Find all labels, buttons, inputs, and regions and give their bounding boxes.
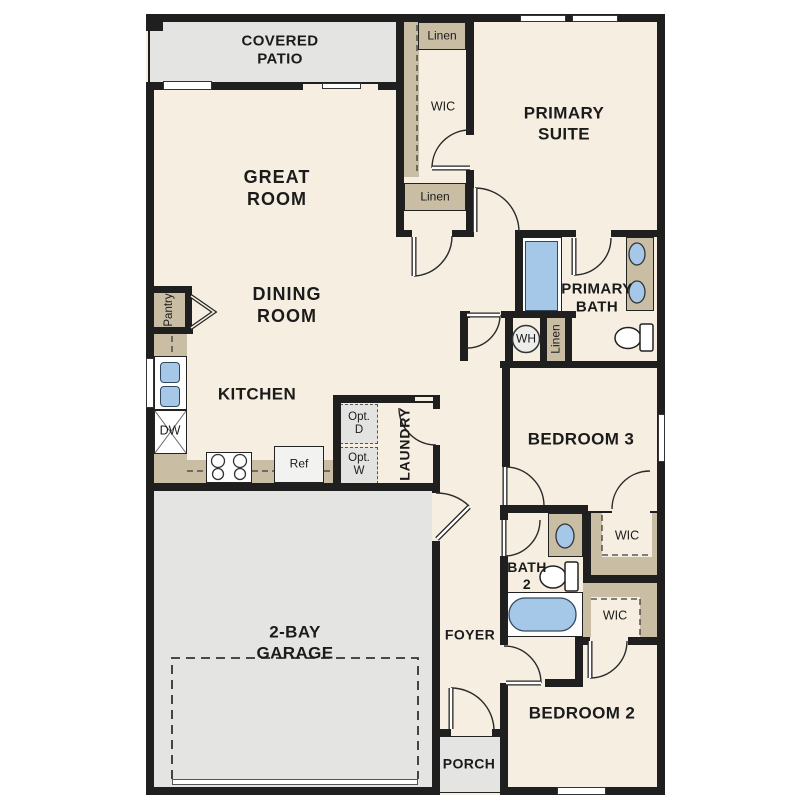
linen-hall-label: Linen — [420, 190, 449, 205]
opt-dryer-label: Opt. D — [348, 411, 370, 437]
pantry-label: Pantry — [162, 293, 176, 326]
wall — [565, 318, 572, 361]
wall — [650, 511, 658, 513]
wall — [433, 445, 440, 487]
covered-patio-label: COVERED PATIO — [242, 33, 319, 70]
wall — [466, 170, 474, 233]
opt-washer-label: Opt. W — [348, 452, 370, 478]
wall — [452, 230, 474, 237]
window — [572, 15, 618, 22]
bedroom2-label: BEDROOM 2 — [529, 704, 636, 725]
wall — [515, 230, 576, 237]
wall — [588, 511, 612, 513]
wall — [500, 683, 508, 793]
window — [658, 414, 665, 462]
wall — [583, 575, 665, 583]
wall — [500, 513, 508, 520]
wall — [396, 14, 404, 237]
refrigerator-label: Ref — [290, 457, 309, 472]
primary-bath-label: PRIMARY BATH — [561, 281, 632, 318]
primary-suite-label: PRIMARY SUITE — [524, 103, 605, 144]
wic-primary-label: WIC — [431, 99, 455, 114]
wall — [628, 637, 665, 645]
garage-label: 2-BAY GARAGE — [256, 622, 333, 663]
garage-door-threshold — [172, 779, 418, 785]
wall — [502, 368, 510, 467]
tub-surround — [503, 592, 583, 637]
wall — [540, 318, 547, 361]
dishwasher-label: DW — [160, 423, 181, 438]
sliding-door-panel — [322, 83, 361, 89]
kitchen-sink-basin-2 — [160, 386, 180, 407]
wall — [146, 483, 440, 491]
wall — [575, 637, 583, 687]
dining-room-label: DINING ROOM — [253, 284, 322, 328]
water-heater-label: WH — [516, 332, 536, 347]
stove-box — [206, 452, 252, 483]
window — [520, 15, 566, 22]
wall — [146, 14, 163, 31]
porch-label: PORCH — [443, 755, 496, 772]
wall — [333, 403, 341, 487]
wall — [492, 729, 504, 736]
bath2-label: BATH 2 — [507, 559, 546, 593]
wall — [152, 327, 193, 334]
kitchen-sink-basin-1 — [160, 362, 180, 383]
wall — [515, 237, 523, 313]
wall — [432, 729, 440, 793]
wall — [146, 82, 154, 795]
wic-bedroom2-label: WIC — [603, 608, 627, 623]
laundry-door-notch — [415, 397, 433, 401]
floor-plan: COVERED PATIO GREAT ROOM DINING ROOM KIT… — [0, 0, 810, 810]
shower-pan — [525, 241, 558, 311]
wall — [432, 541, 440, 729]
wall — [545, 679, 575, 687]
wall — [460, 318, 468, 361]
window — [557, 787, 606, 795]
wall — [466, 14, 474, 135]
wall — [505, 313, 513, 361]
great-room-label: GREAT ROOM — [244, 167, 311, 211]
window — [146, 358, 154, 408]
bedroom3-label: BEDROOM 3 — [528, 430, 635, 451]
linen-bath-label: Linen — [549, 324, 564, 353]
wall — [396, 230, 412, 237]
primary-wic-shelf-strip — [404, 22, 419, 177]
wall — [611, 230, 665, 237]
wall — [146, 787, 440, 795]
window — [163, 81, 212, 90]
bath2-vanity — [548, 513, 583, 557]
wall — [460, 311, 470, 318]
wic-bedroom3-label: WIC — [615, 528, 639, 543]
wall — [657, 14, 665, 795]
kitchen-label: KITCHEN — [218, 385, 296, 406]
wall — [583, 637, 590, 645]
linen-top-label: Linen — [427, 29, 456, 44]
wall — [433, 403, 440, 409]
laundry-label: LAUNDRY — [396, 407, 413, 481]
wall — [583, 513, 591, 575]
foyer-label: FOYER — [445, 626, 495, 643]
wall — [500, 505, 588, 513]
wall — [500, 361, 665, 368]
